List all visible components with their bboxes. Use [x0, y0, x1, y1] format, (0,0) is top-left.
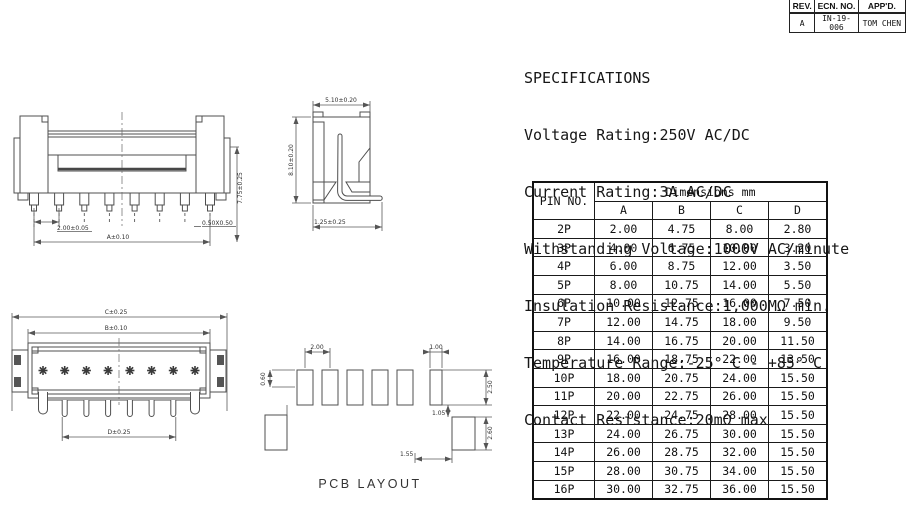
table-row: 10P 18.00 20.75 24.00 15.50 [533, 368, 827, 387]
front-pitch-dimension-label: 2.00±0.05 [57, 225, 89, 232]
pcb-pad-height-label: 2.50 [487, 380, 494, 394]
dim-c-cell: 10.00 [711, 238, 769, 257]
dim-c-cell: 28.00 [711, 406, 769, 425]
dim-b-cell: 30.75 [653, 461, 711, 480]
dim-b-cell: 10.75 [653, 275, 711, 294]
dim-a-cell: 30.00 [595, 480, 653, 499]
appd-header: APP'D. [858, 0, 905, 13]
datasheet-page: 2.00±0.05 A±0.10 0.50X0.50 7.75±0.25 [0, 0, 906, 517]
front-view-drawing: 2.00±0.05 A±0.10 0.50X0.50 7.75±0.25 [8, 100, 254, 252]
dim-c-cell: 18.00 [711, 313, 769, 332]
dim-c-cell: 22.00 [711, 350, 769, 369]
table-row: 14P 26.00 28.75 32.00 15.50 [533, 443, 827, 462]
dim-d-cell: 15.50 [769, 368, 828, 387]
front-overall-width-dimension-label: A±0.10 [107, 234, 130, 241]
table-row: 7P 12.00 14.75 18.00 9.50 [533, 313, 827, 332]
dim-c-cell: 8.00 [711, 220, 769, 239]
top-body-length-dimension-label: B±0.10 [105, 325, 128, 332]
dim-b-cell: 28.75 [653, 443, 711, 462]
ecn-value: IN-19-006 [815, 13, 858, 33]
dim-a-cell: 10.00 [595, 294, 653, 313]
pin-cell: 16P [533, 480, 595, 499]
pin-cell: 15P [533, 461, 595, 480]
section-contact-pin [338, 134, 383, 200]
dim-a-cell: 2.00 [595, 220, 653, 239]
dim-a-cell: 12.00 [595, 313, 653, 332]
dim-a-cell: 14.00 [595, 331, 653, 350]
dim-c-cell: 20.00 [711, 331, 769, 350]
dimensions-group-header: Dimensions mm [595, 182, 828, 201]
table-row: 5P 8.00 10.75 14.00 5.50 [533, 275, 827, 294]
dim-b-cell: 16.75 [653, 331, 711, 350]
dim-a-cell: 6.00 [595, 257, 653, 276]
pin-cell: 13P [533, 424, 595, 443]
table-row: 2P 2.00 4.75 8.00 2.80 [533, 220, 827, 239]
pin-no-header: PIN NO. [533, 182, 595, 220]
top-view-drawing: C±0.25 B±0.10 [3, 293, 243, 455]
ecn-header: ECN. NO. [815, 0, 858, 13]
pin-cell: 10P [533, 368, 595, 387]
table-row: 8P 14.00 16.75 20.00 11.50 [533, 331, 827, 350]
dim-d-cell: 11.50 [769, 331, 828, 350]
dim-a-cell: 16.00 [595, 350, 653, 369]
table-row: 11P 20.00 22.75 26.00 15.50 [533, 387, 827, 406]
dim-d-cell: 15.50 [769, 387, 828, 406]
front-height-dimension-label: 7.75±0.25 [237, 172, 244, 204]
dim-b-cell: 6.75 [653, 238, 711, 257]
table-row: 9P 16.00 18.75 22.00 13.50 [533, 350, 827, 369]
connector-front-body [14, 112, 230, 226]
rev-header: REV. [790, 0, 815, 13]
column-header-d: D [769, 201, 828, 220]
dimensions-table: PIN NO. Dimensions mm A B C D 2P 2.00 4.… [532, 181, 828, 500]
section-width-dimension-label: 5.10±0.20 [325, 97, 357, 104]
pcb-layout-caption: PCB LAYOUT [318, 477, 421, 491]
pin-cell: 12P [533, 406, 595, 425]
dim-b-cell: 22.75 [653, 387, 711, 406]
section-view-drawing: 5.10±0.20 8.10±0.20 1.25±0.25 [288, 82, 433, 242]
dim-b-cell: 26.75 [653, 424, 711, 443]
rev-value: A [790, 13, 815, 33]
dim-c-cell: 34.00 [711, 461, 769, 480]
dim-d-cell: 15.50 [769, 461, 828, 480]
section-lead-dimension-label: 1.25±0.25 [314, 219, 346, 226]
table-row: 15P 28.00 30.75 34.00 15.50 [533, 461, 827, 480]
dim-d-cell: 2.80 [769, 220, 828, 239]
dim-b-cell: 32.75 [653, 480, 711, 499]
dim-a-cell: 18.00 [595, 368, 653, 387]
pin-cell: 9P [533, 350, 595, 369]
pcb-pad-gap-label: 1.05 [432, 410, 446, 417]
dim-c-cell: 26.00 [711, 387, 769, 406]
table-row: 4P 6.00 8.75 12.00 3.50 [533, 257, 827, 276]
dim-d-cell: 7.50 [769, 294, 828, 313]
pcb-layout-drawing: 2.00 0.60 1.00 2.50 1.05 2.60 1. [250, 335, 506, 505]
dim-c-cell: 36.00 [711, 480, 769, 499]
dim-d-cell: 15.50 [769, 424, 828, 443]
dim-d-cell: 3.20 [769, 238, 828, 257]
top-pin-span-dimension-label: D±0.25 [107, 429, 130, 436]
dim-c-cell: 32.00 [711, 443, 769, 462]
dim-a-cell: 26.00 [595, 443, 653, 462]
dim-b-cell: 18.75 [653, 350, 711, 369]
dim-b-cell: 14.75 [653, 313, 711, 332]
dim-a-cell: 28.00 [595, 461, 653, 480]
dim-d-cell: 15.50 [769, 480, 828, 499]
table-row: 6P 10.00 12.75 16.00 7.50 [533, 294, 827, 313]
pin-cell: 2P [533, 220, 595, 239]
dim-d-cell: 15.50 [769, 443, 828, 462]
top-overall-length-dimension-label: C±0.25 [105, 309, 128, 316]
pin-cell: 3P [533, 238, 595, 257]
table-row: 13P 24.00 26.75 30.00 15.50 [533, 424, 827, 443]
dim-a-cell: 20.00 [595, 387, 653, 406]
pin-cell: 7P [533, 313, 595, 332]
dim-a-cell: 22.00 [595, 406, 653, 425]
appd-value: TOM CHEN [858, 13, 905, 33]
pin-cell: 6P [533, 294, 595, 313]
dim-d-cell: 13.50 [769, 350, 828, 369]
dim-b-cell: 20.75 [653, 368, 711, 387]
dim-b-cell: 12.75 [653, 294, 711, 313]
revision-block: REV. ECN. NO. APP'D. A IN-19-006 TOM CHE… [789, 0, 906, 33]
pcb-pad-pitch-label: 2.00 [310, 344, 324, 351]
pcb-tab-offset-label: 1.55 [400, 451, 414, 458]
dim-d-cell: 3.50 [769, 257, 828, 276]
pin-cell: 8P [533, 331, 595, 350]
pin-cell: 4P [533, 257, 595, 276]
dim-c-cell: 16.00 [711, 294, 769, 313]
pcb-tab-pad-height-label: 2.60 [487, 426, 494, 440]
section-height-dimension-label: 8.10±0.20 [288, 144, 295, 176]
pcb-end-pad-width-label: 1.00 [429, 344, 443, 351]
pin-cell: 14P [533, 443, 595, 462]
column-header-b: B [653, 201, 711, 220]
spec-line-voltage: Voltage Rating:250V AC/DC [524, 126, 849, 145]
column-header-a: A [595, 201, 653, 220]
table-row: 3P 4.00 6.75 10.00 3.20 [533, 238, 827, 257]
front-pin-tip-dimension-label: 0.50X0.50 [202, 220, 233, 227]
dim-c-cell: 12.00 [711, 257, 769, 276]
pin-cell: 11P [533, 387, 595, 406]
dim-a-cell: 4.00 [595, 238, 653, 257]
pcb-pad-width-label: 0.60 [260, 372, 267, 386]
top-view-dimensions-lower: D±0.25 [62, 417, 176, 441]
dim-d-cell: 5.50 [769, 275, 828, 294]
dim-b-cell: 24.75 [653, 406, 711, 425]
dim-c-cell: 24.00 [711, 368, 769, 387]
table-row: 12P 22.00 24.75 28.00 15.50 [533, 406, 827, 425]
pin-cell: 5P [533, 275, 595, 294]
dim-b-cell: 4.75 [653, 220, 711, 239]
dim-d-cell: 9.50 [769, 313, 828, 332]
dim-a-cell: 8.00 [595, 275, 653, 294]
dim-a-cell: 24.00 [595, 424, 653, 443]
dim-c-cell: 30.00 [711, 424, 769, 443]
dim-b-cell: 8.75 [653, 257, 711, 276]
dim-c-cell: 14.00 [711, 275, 769, 294]
dim-d-cell: 15.50 [769, 406, 828, 425]
specifications-title: SPECIFICATIONS [524, 69, 849, 88]
pcb-dimensions: 2.00 0.60 1.00 2.50 1.05 2.60 1. [260, 344, 494, 463]
column-header-c: C [711, 201, 769, 220]
table-row: 16P 30.00 32.75 36.00 15.50 [533, 480, 827, 499]
